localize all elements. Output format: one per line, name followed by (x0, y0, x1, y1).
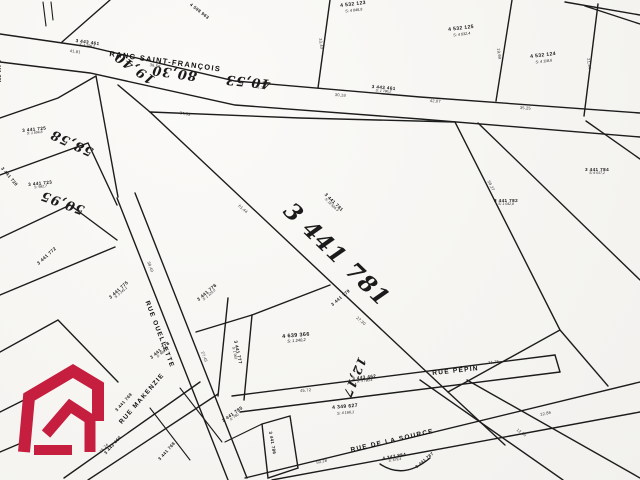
cadastral-map: RANG SAINT-FRANÇOISRUE OUELLETTERUE PÉPI… (0, 0, 640, 480)
house-logo (0, 0, 640, 480)
